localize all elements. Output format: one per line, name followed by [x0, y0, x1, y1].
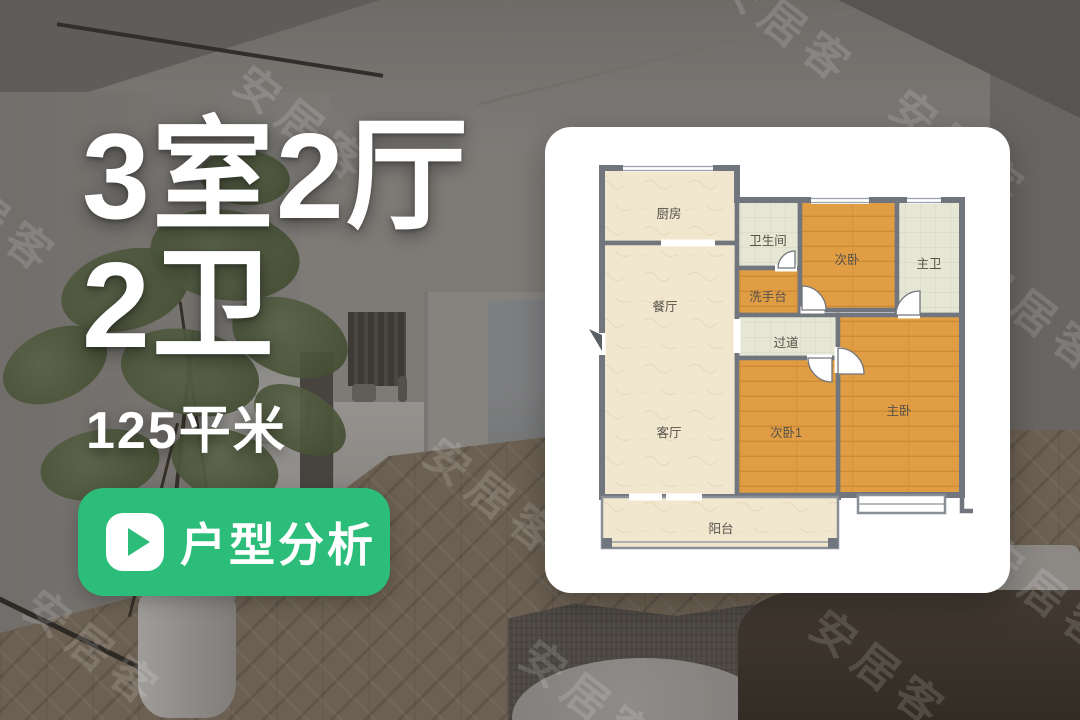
- floorplan-card: 厨房 餐厅 客厅 卫生间 洗手台 过道 次卧 主卫 主卧 次卧1 阳台: [545, 127, 1010, 593]
- wall-notch: [962, 495, 973, 511]
- headline: 3室2厅 2卫: [82, 112, 470, 371]
- play-triangle-icon: [128, 528, 150, 556]
- room-label-hallway: 过道: [773, 336, 799, 350]
- analysis-button-label: 户型分析: [180, 509, 376, 575]
- balcony-corner: [602, 538, 612, 548]
- analysis-button[interactable]: 户型分析: [78, 488, 390, 596]
- room-label-washstand: 洗手台: [749, 289, 787, 304]
- room-label-living: 客厅: [656, 425, 681, 440]
- play-icon: [106, 513, 164, 571]
- room-label-kitchen: 厨房: [656, 206, 681, 221]
- room-kitchen: [602, 168, 737, 243]
- room-label-master-bedroom: 主卧: [886, 404, 911, 418]
- room-dining-living: [602, 243, 737, 497]
- room-label-bathroom: 卫生间: [749, 234, 787, 248]
- floorplan-svg: 厨房 餐厅 客厅 卫生间 洗手台 过道 次卧 主卫 主卧 次卧1 阳台: [545, 127, 1010, 593]
- promo-cover: 安居客 安居客 安居客 安居客 安居客 安居客 安居客 安居客 安居客 安居客 …: [0, 0, 1080, 720]
- room-label-balcony: 阳台: [708, 521, 733, 536]
- room-label-master-bath: 主卫: [916, 257, 941, 271]
- room-label-dining: 餐厅: [652, 299, 677, 314]
- balcony-corner: [828, 538, 838, 548]
- room-label-bedroom-2: 次卧: [834, 253, 859, 267]
- headline-line1: 3室2厅: [82, 112, 470, 241]
- area-label: 125平米: [86, 388, 287, 463]
- room-label-bedroom-1: 次卧1: [770, 426, 802, 440]
- headline-line2: 2卫: [82, 241, 470, 370]
